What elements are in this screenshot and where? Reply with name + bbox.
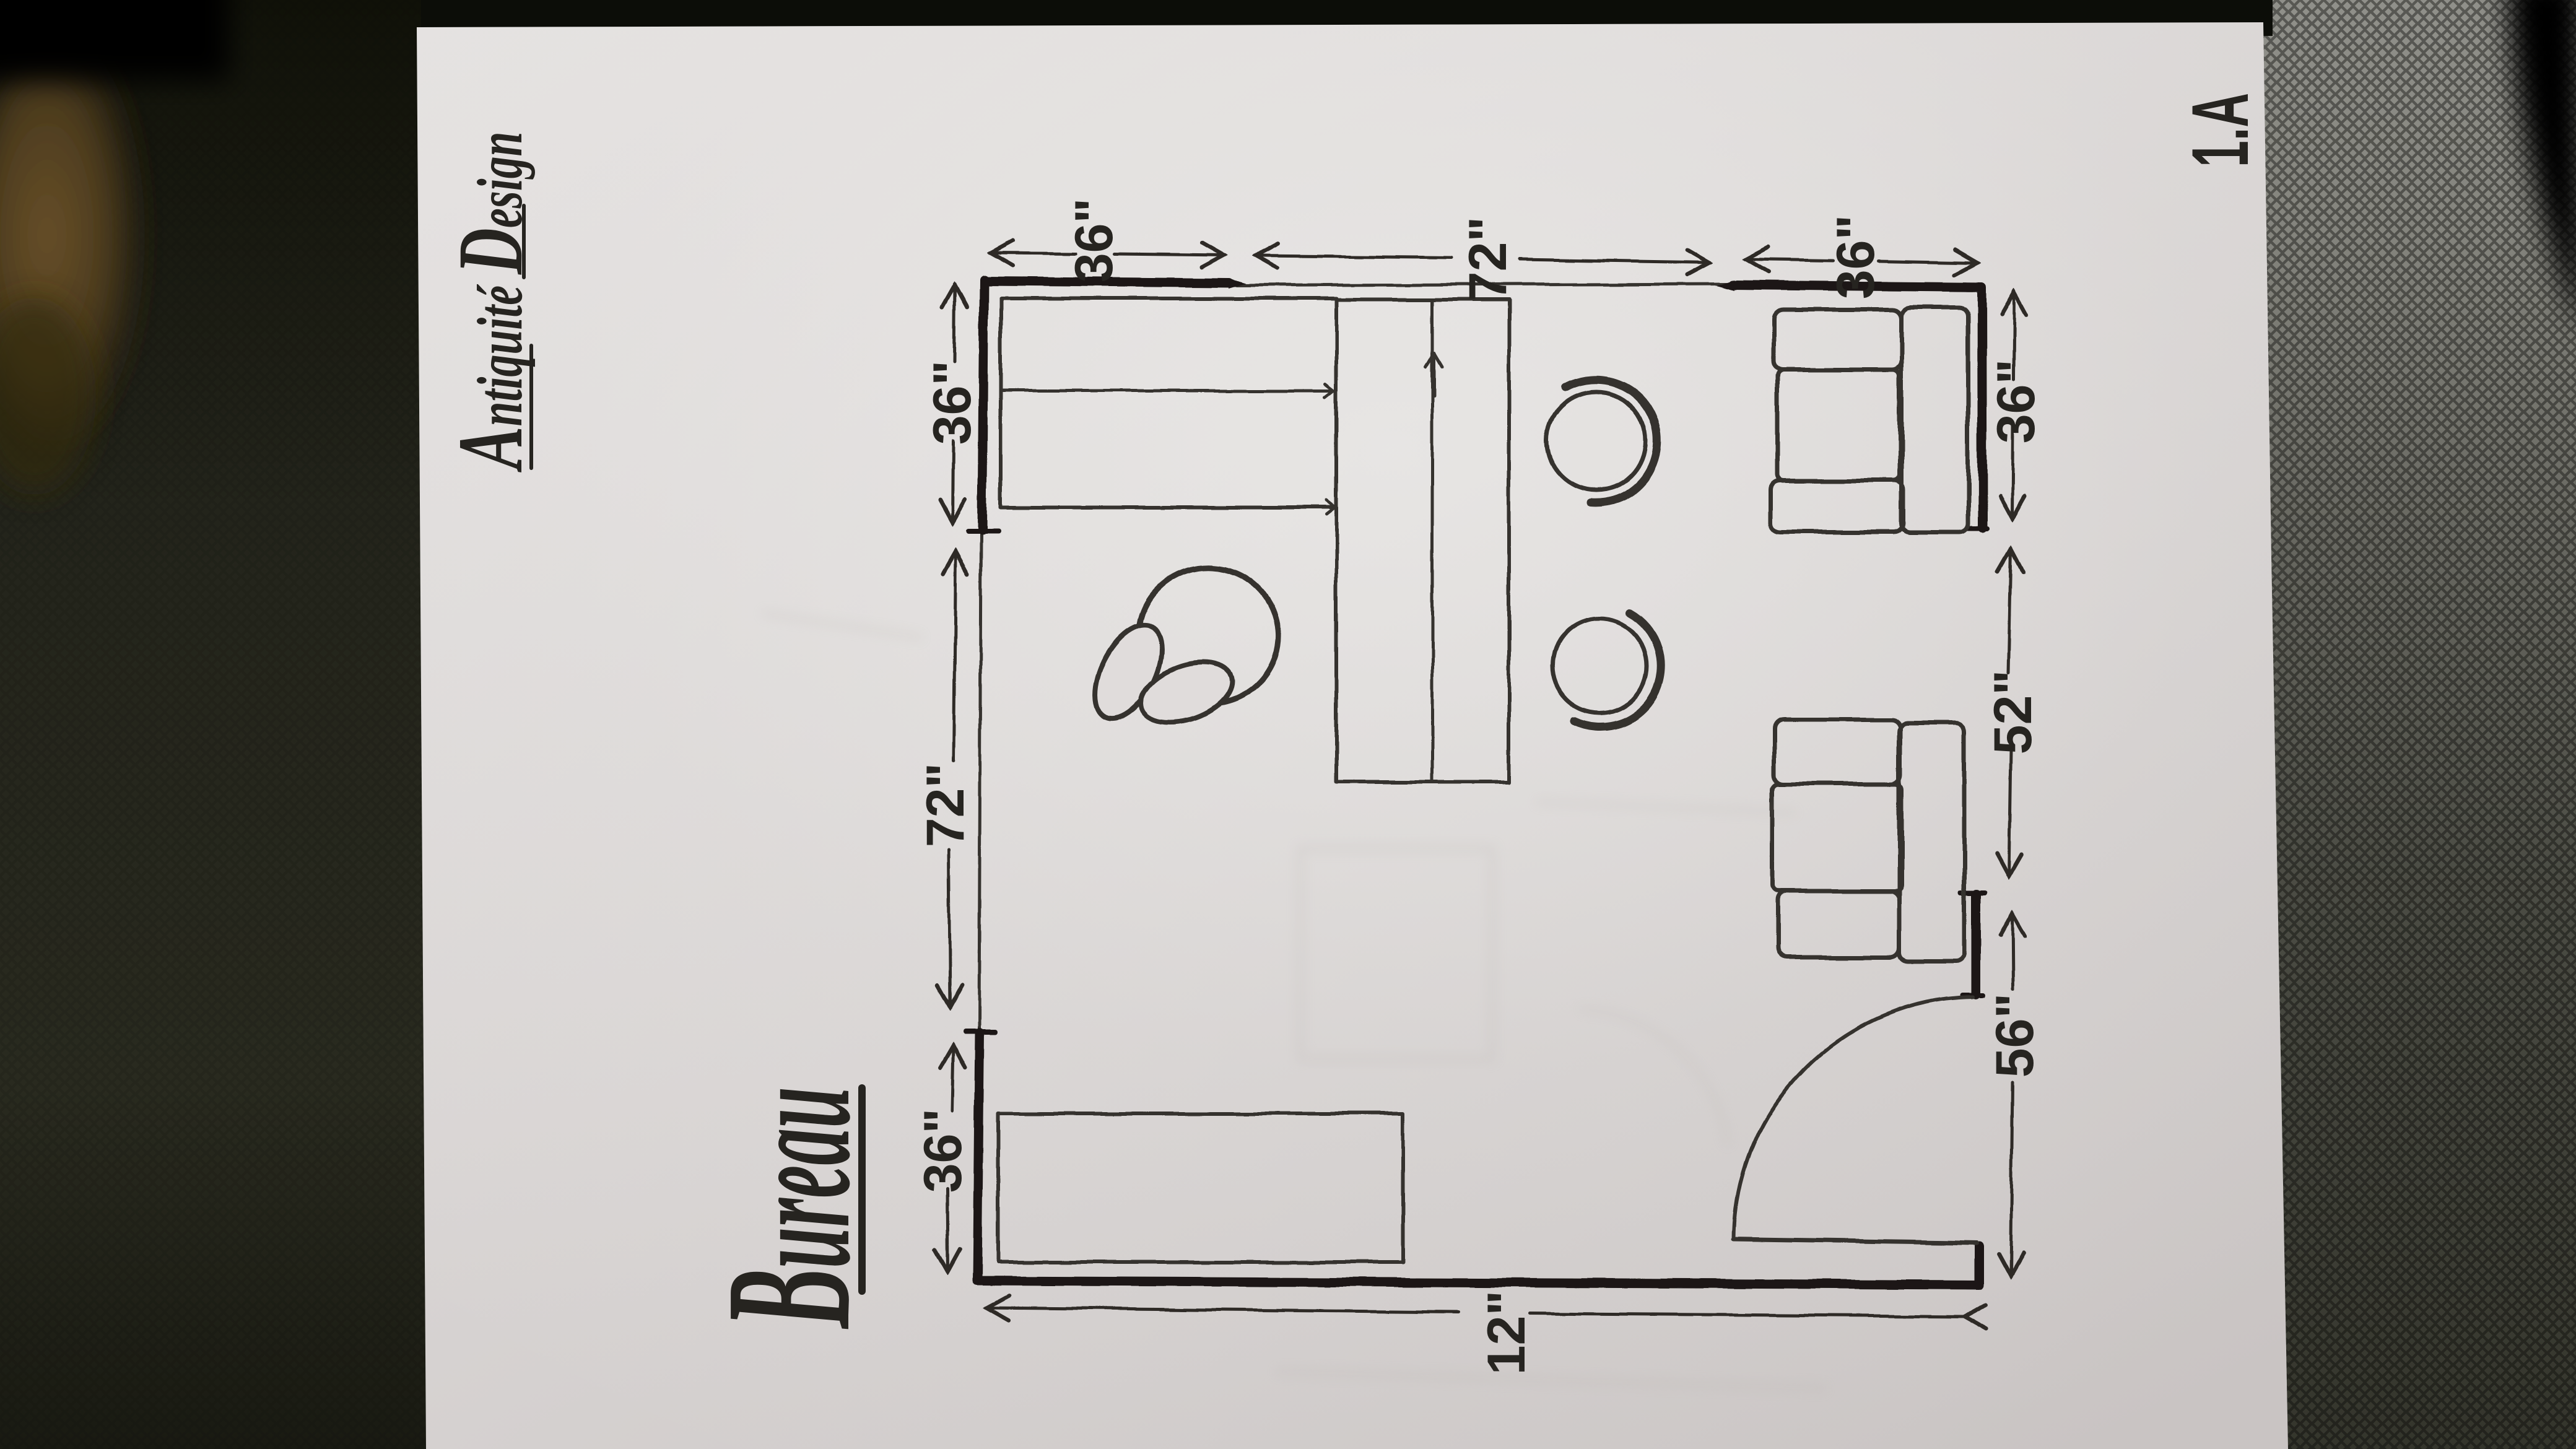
svg-text:1.A: 1.A	[2175, 93, 2265, 167]
svg-text:36": 36"	[923, 360, 982, 445]
svg-text:Bureau: Bureau	[689, 1087, 887, 1329]
svg-text:72": 72"	[1458, 217, 1518, 301]
svg-text:12": 12"	[1477, 1290, 1536, 1375]
svg-text:72": 72"	[916, 763, 975, 847]
svg-text:52": 52"	[1983, 670, 2043, 754]
svg-text:36": 36"	[1064, 198, 1124, 282]
svg-text:56": 56"	[1985, 993, 2045, 1077]
svg-text:36": 36"	[1986, 359, 2046, 443]
svg-text:36": 36"	[1826, 215, 1886, 299]
svg-text:36": 36"	[913, 1108, 973, 1193]
